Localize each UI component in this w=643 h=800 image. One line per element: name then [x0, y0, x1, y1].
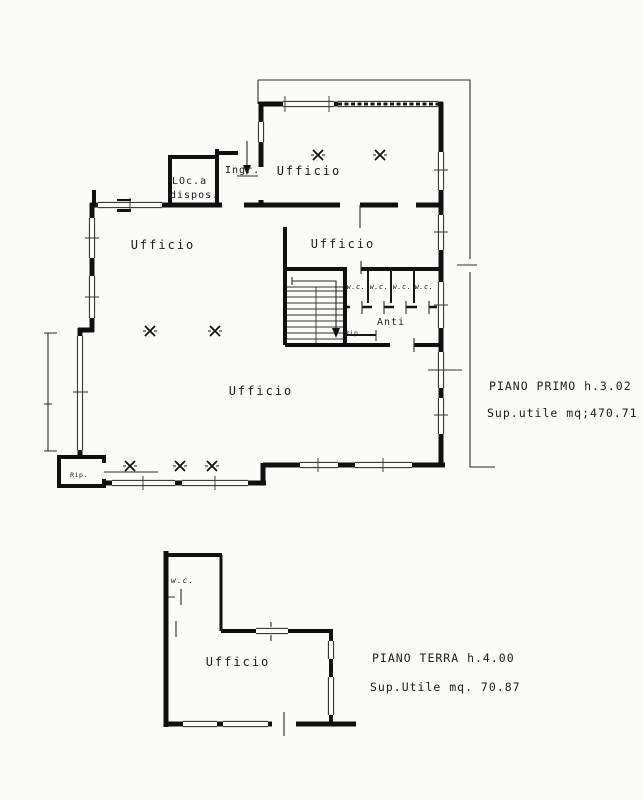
column-icon — [373, 150, 387, 160]
window — [283, 100, 334, 108]
ground-floor-caption: PIANO TERRA h.4.00 Sup.Utile mq. 70.87 — [370, 651, 521, 694]
first-floor-area: Sup.utile mq;470.71 — [487, 406, 638, 420]
window — [257, 122, 265, 142]
column-icon — [208, 326, 222, 336]
window — [437, 152, 445, 190]
balcony-step — [457, 259, 477, 272]
room-label-ufficio-middle: Ufficio — [311, 237, 376, 251]
ground-floor-area: Sup.Utile mq. 70.87 — [370, 680, 521, 694]
room-label-wc-4: w.c. — [415, 283, 434, 291]
window-ticks — [73, 96, 462, 490]
ground-floor-title: PIANO TERRA h.4.00 — [372, 651, 515, 665]
room-label-rip-corner: Rip. — [70, 471, 88, 479]
room-label-wc-2: w.c. — [370, 283, 389, 291]
room-label-wc-1: w.c. — [347, 283, 366, 291]
stair-treads — [287, 287, 343, 343]
first-floor-title: PIANO PRIMO h.3.02 — [489, 379, 632, 393]
room-label-loc-dispos-1: LOc.a — [172, 176, 207, 187]
core-walls — [285, 205, 441, 352]
column-icon — [205, 461, 219, 471]
window — [223, 720, 268, 728]
room-label-loc-dispos-2: dispos. — [170, 190, 219, 201]
ground-floor-windows — [183, 627, 335, 728]
room-label-ufficio-ground: Ufficio — [206, 655, 271, 669]
room-label-ufficio-top: Ufficio — [277, 164, 342, 178]
window — [338, 100, 438, 108]
balcony-outline — [44, 80, 495, 467]
window — [300, 461, 338, 469]
first-floor-plan: Ufficio Ingr. LOc.a dispos. Ufficio Uffi… — [44, 80, 638, 490]
column-icon — [143, 326, 157, 336]
window — [437, 215, 445, 250]
window — [327, 641, 335, 659]
window — [327, 677, 335, 715]
room-label-wc-3: w.c. — [393, 283, 412, 291]
window — [76, 336, 84, 450]
window — [256, 627, 288, 635]
window — [112, 479, 175, 487]
floor-plan-drawing: Ufficio Ingr. LOc.a dispos. Ufficio Uffi… — [0, 0, 643, 800]
room-label-ingresso: Ingr. — [225, 165, 260, 176]
door-ticks — [360, 205, 429, 352]
exterior-walls — [78, 102, 443, 485]
window — [183, 720, 217, 728]
window — [437, 398, 445, 434]
column-icon — [311, 150, 325, 160]
window — [355, 461, 412, 469]
room-label-rip-under-stair: Rip. — [345, 329, 363, 337]
column-icon — [123, 461, 137, 471]
room-label-ufficio-left: Ufficio — [131, 238, 196, 252]
columns — [123, 150, 387, 471]
column-icon — [173, 461, 187, 471]
first-floor-caption: PIANO PRIMO h.3.02 Sup.utile mq;470.71 — [487, 379, 638, 420]
scanned-floor-plan-page: Ufficio Ingr. LOc.a dispos. Ufficio Uffi… — [0, 0, 643, 800]
room-label-ufficio-main: Ufficio — [229, 384, 294, 398]
staircase — [287, 277, 343, 343]
room-label-anti: Anti — [377, 317, 405, 328]
ground-floor-plan: w.c. Ufficio PIANO TERRA h.4.00 Sup.Util… — [164, 551, 521, 736]
room-label-wc-ground: w.c. — [171, 576, 194, 585]
